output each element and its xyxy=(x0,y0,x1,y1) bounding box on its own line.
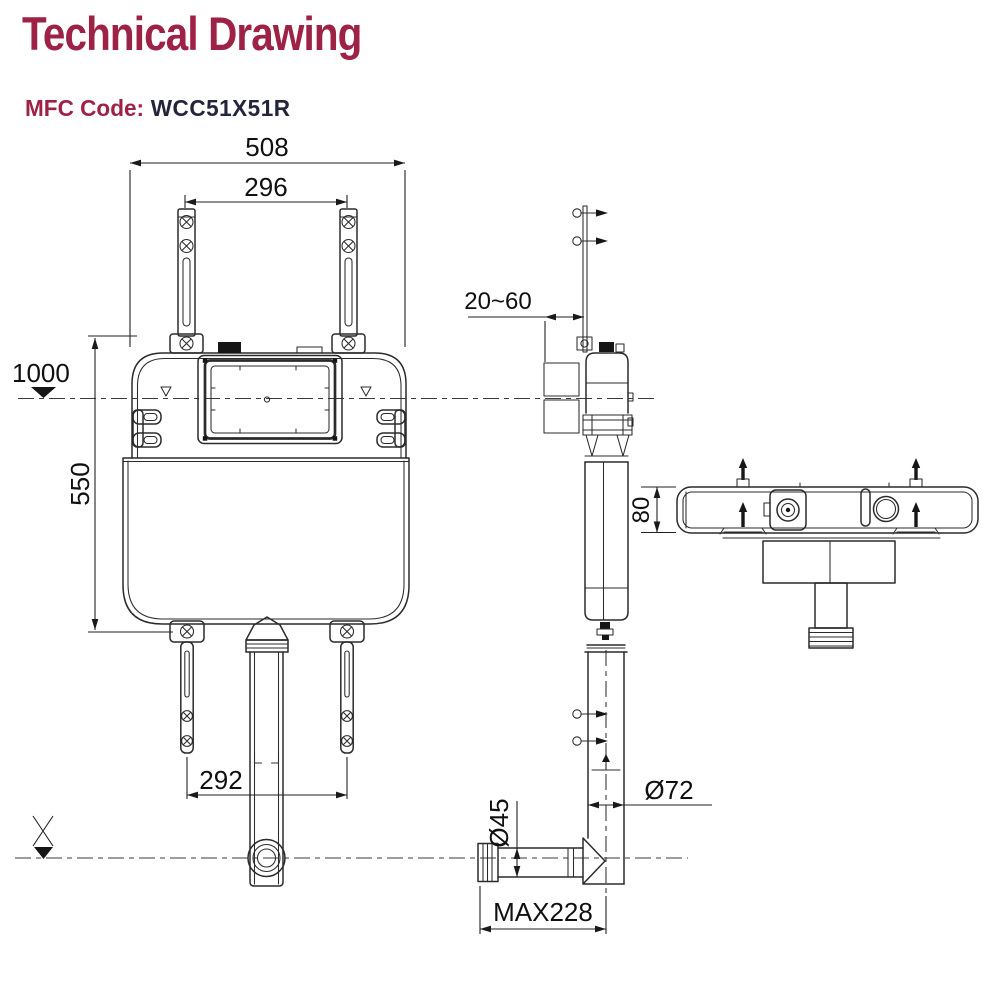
pipe-top-view xyxy=(809,583,853,648)
fill-valve-cap xyxy=(599,342,614,352)
tank-lower-body xyxy=(123,458,409,624)
dim-label-80: 80 xyxy=(628,497,655,524)
inlet-connector xyxy=(218,342,241,353)
dim-flush-pipe-dia: Ø72 xyxy=(588,775,712,805)
dim-label-296: 296 xyxy=(244,172,287,202)
overflow-port xyxy=(874,497,899,522)
shroud-top-view xyxy=(763,541,895,583)
flush-plate-frame xyxy=(198,356,342,444)
dim-leg-spacing: 292 xyxy=(187,757,347,799)
dim-body-depth: 80 xyxy=(628,487,676,533)
dim-wall-clearance: 20~60 xyxy=(464,288,584,362)
dim-label-dia72: Ø72 xyxy=(644,775,693,805)
hanger-rail-right xyxy=(332,209,365,353)
outlet-elbow-side xyxy=(478,844,583,882)
dim-label-550: 550 xyxy=(65,462,95,505)
downpipe-side xyxy=(573,652,624,884)
wall-rail-side xyxy=(583,206,587,352)
top-view: 80 xyxy=(628,458,978,648)
dim-label-1000: 1000 xyxy=(12,358,70,388)
water-level-marks xyxy=(161,387,371,396)
hanger-rail-left xyxy=(170,209,203,353)
tank-top-view xyxy=(677,483,978,533)
pipe-cut-marks xyxy=(255,752,279,763)
dim-label-dia45: Ø45 xyxy=(484,798,514,847)
dim-outlet-dia: Ø45 xyxy=(484,798,517,877)
floor-level-mark xyxy=(33,816,53,859)
dim-hanger-spacing: 296 xyxy=(185,172,347,208)
flush-pipe-front xyxy=(246,617,288,886)
technical-drawing-canvas: 508 296 550 292 1000 xyxy=(0,0,1000,1000)
dim-label-max228: MAX228 xyxy=(493,897,593,927)
dim-front-width: 508 xyxy=(130,132,405,347)
datum-1000-mark: 1000 xyxy=(12,358,70,398)
dim-tank-height: 550 xyxy=(65,336,173,632)
frame-center-mark xyxy=(264,397,269,402)
dim-label-20-60: 20~60 xyxy=(464,288,531,315)
lever-slot xyxy=(861,489,870,526)
dim-label-508: 508 xyxy=(245,132,288,162)
dim-label-292: 292 xyxy=(199,765,242,795)
side-view: 20~60 xyxy=(464,206,712,934)
floor-leg-left xyxy=(170,621,204,753)
top-notch xyxy=(297,347,322,353)
dim-outlet-max-length: MAX228 xyxy=(480,886,606,934)
front-view: 508 296 550 292 1000 xyxy=(12,132,409,886)
page: Technical Drawing MFC Code:WCC51X51R xyxy=(0,0,1000,1000)
tank-side-profile xyxy=(577,337,633,652)
floor-leg-right xyxy=(330,621,364,753)
